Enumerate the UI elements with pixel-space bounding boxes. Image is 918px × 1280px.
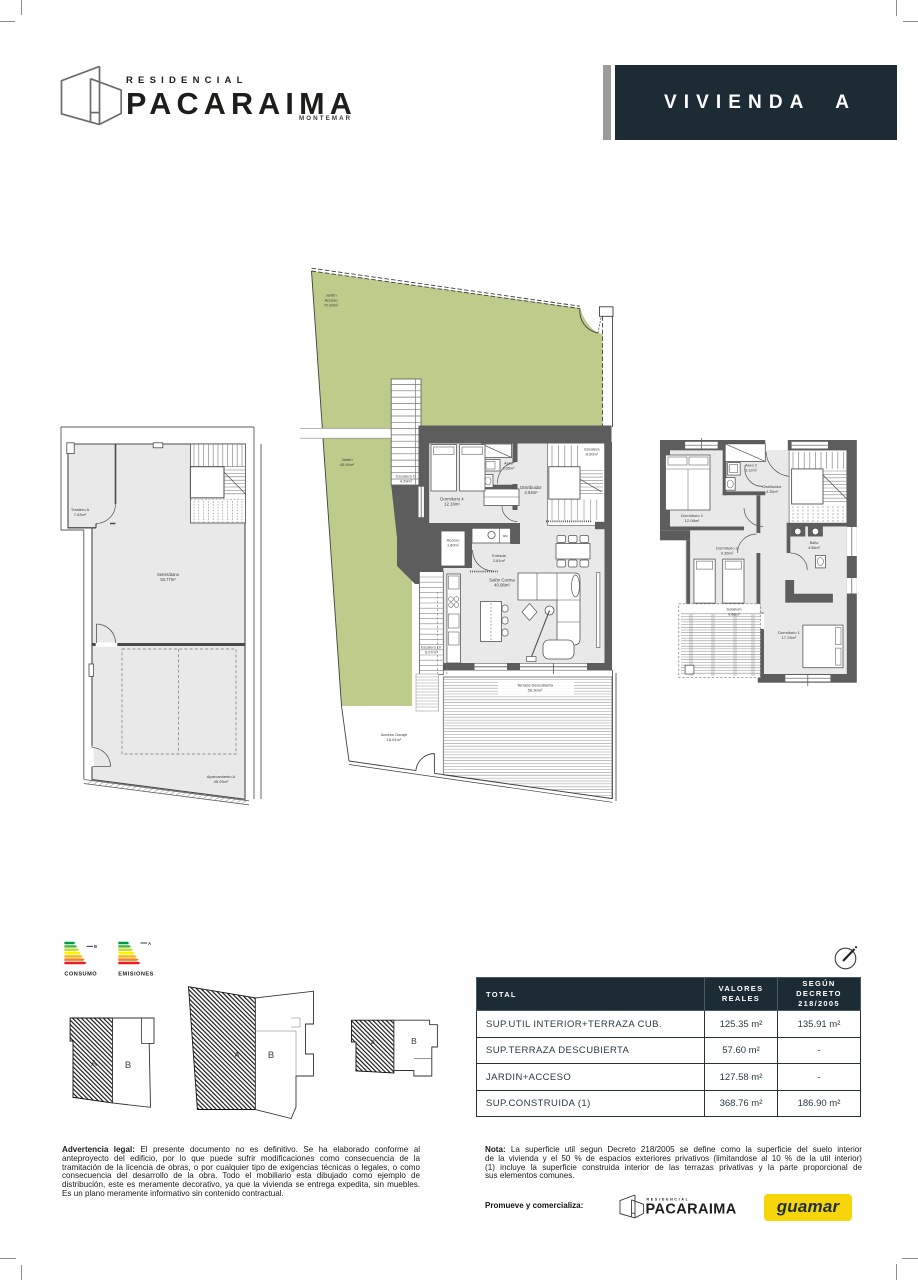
svg-text:PACARAIMA: PACARAIMA — [646, 1202, 737, 1218]
svg-text:A: A — [234, 1050, 240, 1060]
svg-text:4.04m²: 4.04m² — [524, 490, 538, 495]
svg-text:3.12m²: 3.12m² — [745, 469, 758, 473]
svg-text:43.94m²: 43.94m² — [340, 462, 355, 467]
svg-text:2.61m²: 2.61m² — [493, 558, 506, 563]
svg-text:9.36m²: 9.36m² — [721, 551, 734, 556]
svg-text:4.35m²: 4.35m² — [766, 490, 779, 494]
svg-text:56.30m²: 56.30m² — [528, 688, 543, 693]
svg-text:53.77m²: 53.77m² — [160, 577, 176, 582]
svg-text:CONSUMO: CONSUMO — [64, 972, 97, 978]
svg-text:A: A — [148, 941, 151, 946]
svg-text:B: B — [411, 1036, 417, 1046]
svg-text:Escalera 10: Escalera 10 — [421, 646, 441, 650]
svg-text:B: B — [268, 1050, 274, 1061]
svg-text:B: B — [125, 1060, 131, 1071]
svg-text:A: A — [91, 1058, 97, 1068]
svg-text:Solarium: Solarium — [727, 608, 742, 612]
svg-text:45.99m²: 45.99m² — [214, 779, 229, 784]
svg-text:72.93m²: 72.93m² — [324, 303, 339, 308]
svg-text:3.85m²: 3.85m² — [502, 466, 515, 471]
svg-text:9.86m²: 9.86m² — [728, 613, 741, 617]
svg-text:B: B — [94, 944, 97, 949]
svg-text:1.80m²: 1.80m² — [447, 543, 460, 548]
svg-text:6.50m²: 6.50m² — [586, 452, 599, 457]
svg-text:40.96m²: 40.96m² — [494, 583, 510, 588]
svg-text:12.08m²: 12.08m² — [685, 518, 700, 523]
svg-text:17.25m²: 17.25m² — [782, 635, 797, 640]
svg-text:WM: WM — [503, 534, 509, 538]
svg-text:4.99m²: 4.99m² — [400, 479, 413, 484]
svg-text:Distribuidor: Distribuidor — [762, 485, 782, 489]
svg-text:Aseo 2: Aseo 2 — [745, 464, 757, 468]
svg-text:6.07m²: 6.07m² — [425, 651, 438, 655]
svg-text:Baño: Baño — [810, 541, 819, 545]
svg-text:12.16m²: 12.16m² — [444, 502, 460, 507]
svg-text:18.61m²: 18.61m² — [387, 737, 402, 742]
svg-text:7.63m²: 7.63m² — [74, 512, 87, 517]
svg-text:A: A — [370, 1038, 375, 1047]
svg-text:4.56m²: 4.56m² — [808, 546, 821, 550]
svg-text:EMISIONES: EMISIONES — [118, 972, 154, 978]
